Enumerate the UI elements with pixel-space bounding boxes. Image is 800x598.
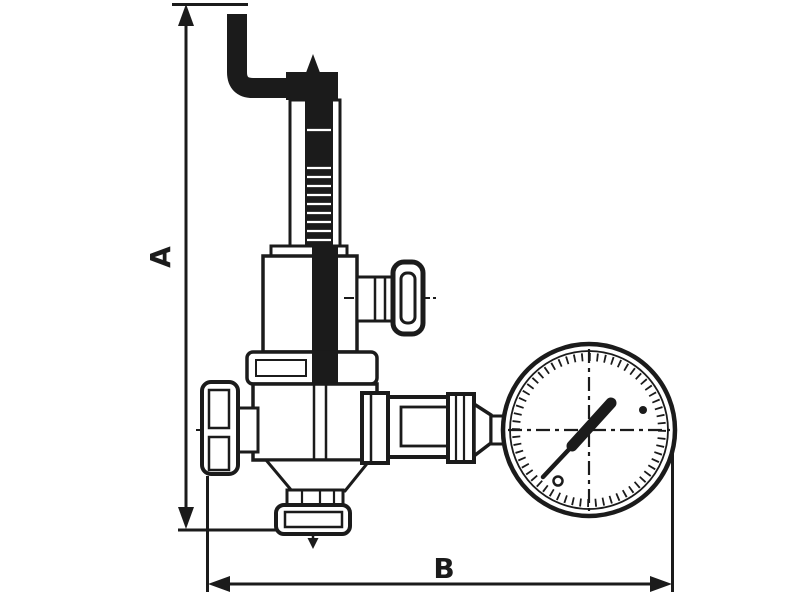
spring-housing-tube (290, 100, 340, 248)
threaded-spindle (305, 100, 333, 248)
gauge-screw-left-icon (554, 477, 563, 486)
dimension-a-arrow-down-icon (178, 507, 194, 529)
top-flange (247, 352, 377, 384)
pressure-gauge (503, 344, 675, 516)
dimension-a-arrow-up-icon (178, 4, 194, 26)
valve-drawing: A B (0, 0, 800, 598)
dimension-b-label: B (433, 552, 454, 585)
gauge-socket-taper (474, 404, 491, 456)
dimension-a-label: A (144, 246, 177, 268)
technical-drawing-canvas: A B (0, 0, 800, 598)
spring-bonnet (263, 246, 357, 352)
dimension-b-arrow-right-icon (650, 576, 672, 592)
gauge-screw-right-icon (639, 406, 647, 414)
inlet-union-nut (202, 382, 258, 474)
gauge-gland-nut (448, 394, 474, 462)
dimension-b-arrow-left-icon (208, 576, 230, 592)
union-nut-to-gauge (362, 393, 505, 463)
outlet-bottom-flange (276, 490, 350, 549)
flow-direction-arrow-icon (308, 534, 319, 549)
screw-cap (286, 72, 338, 100)
body-skirt (266, 460, 370, 491)
